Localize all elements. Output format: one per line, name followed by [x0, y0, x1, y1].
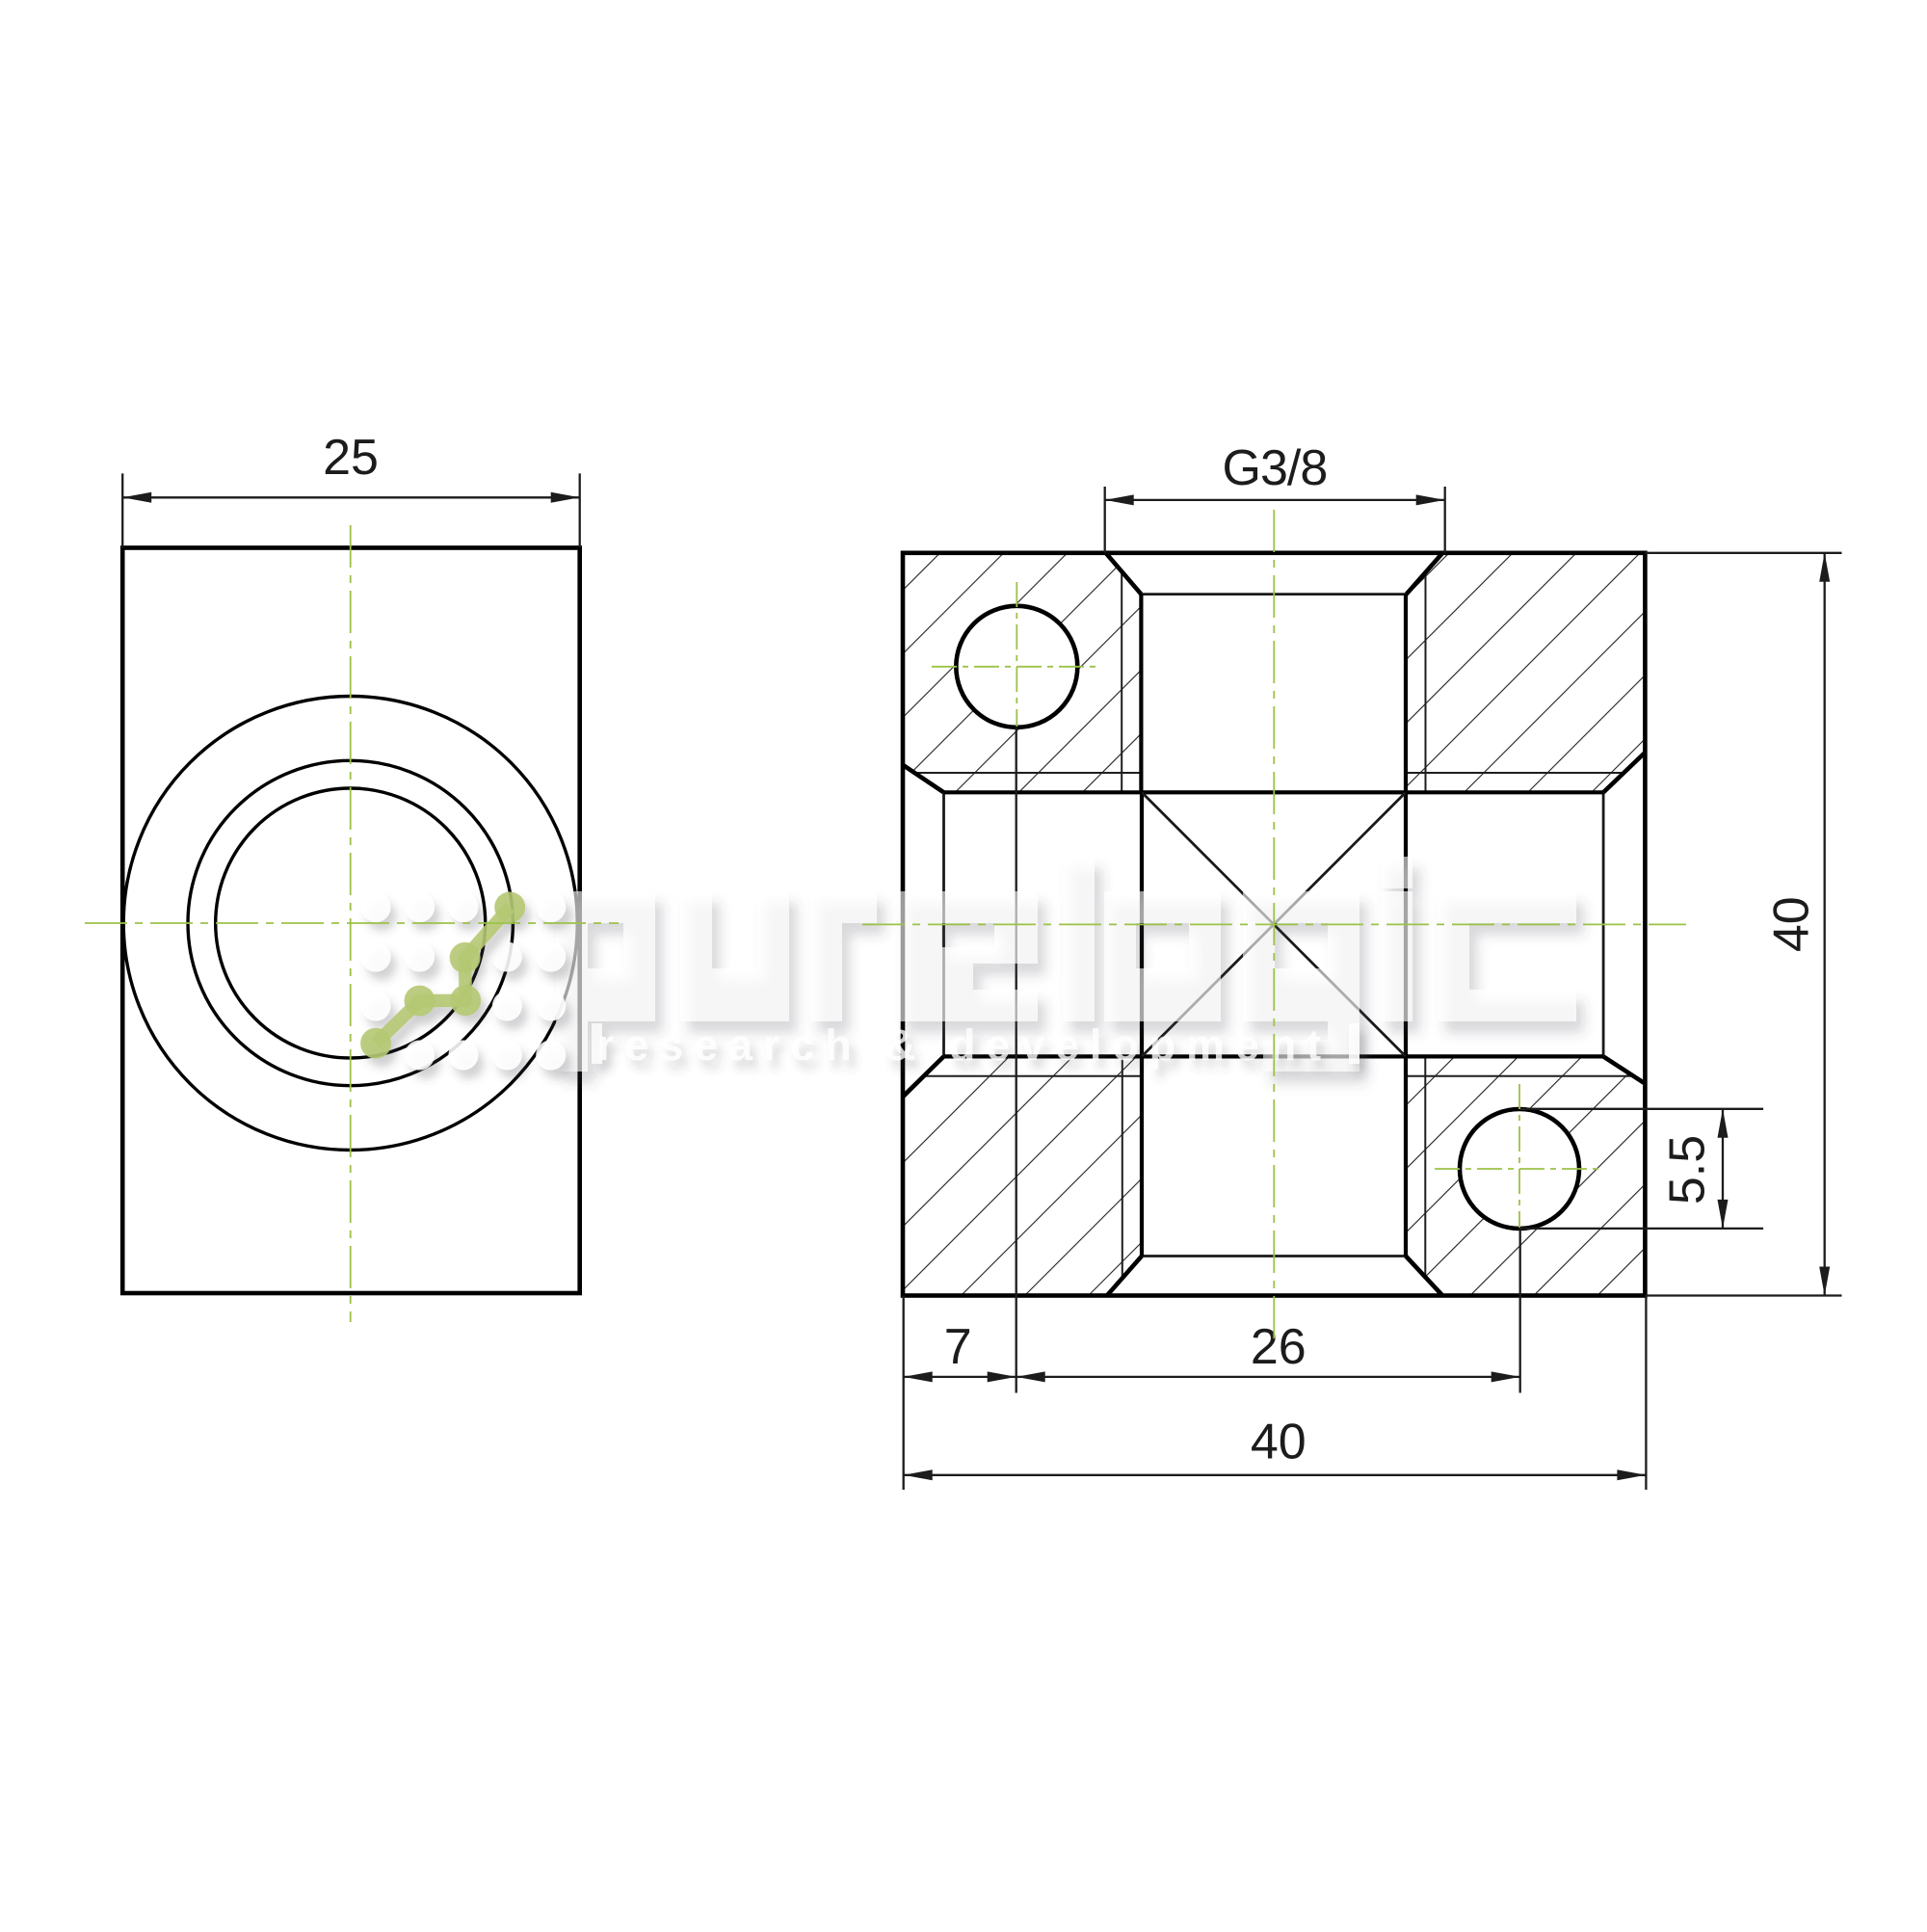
- svg-text:25: 25: [323, 430, 379, 486]
- svg-text:40: 40: [1251, 1414, 1307, 1469]
- svg-text:research & development: research & development: [597, 1020, 1332, 1070]
- svg-text:40: 40: [1764, 896, 1820, 952]
- svg-text:7: 7: [944, 1319, 972, 1375]
- svg-text:5.5: 5.5: [1660, 1135, 1716, 1204]
- svg-text:G3/8: G3/8: [1223, 440, 1328, 496]
- svg-text:26: 26: [1251, 1319, 1307, 1375]
